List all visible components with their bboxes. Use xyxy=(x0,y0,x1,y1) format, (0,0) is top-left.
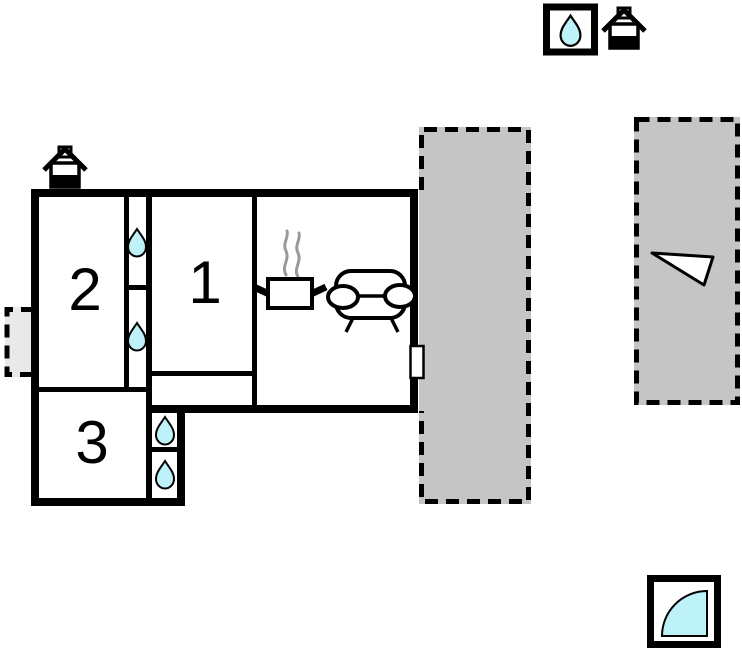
wall-room1-left xyxy=(146,197,152,506)
floorplan-canvas: 1 2 3 xyxy=(0,0,742,652)
house-icon xyxy=(603,8,645,48)
sofa-armrest-left xyxy=(328,286,358,308)
door-swing-legend xyxy=(651,579,718,645)
wall-left xyxy=(31,189,39,506)
wall-room3-column-divider xyxy=(152,447,185,452)
bathroom-legend xyxy=(547,7,595,52)
room-1-label: 1 xyxy=(188,249,221,316)
room-2-label: 2 xyxy=(68,256,101,323)
wall-top xyxy=(31,189,418,197)
wall-room2-column-divider xyxy=(124,285,152,290)
terrace-1-fill xyxy=(419,127,531,504)
building: 1 2 3 xyxy=(31,189,424,506)
wall-room2-column-left xyxy=(124,197,129,388)
terrace-2 xyxy=(634,117,740,405)
house-icon xyxy=(44,147,86,187)
wall-room2-room3-divider xyxy=(31,387,152,392)
room-3-label: 3 xyxy=(75,409,108,476)
annex-outline xyxy=(5,307,34,377)
floorplan: 1 2 3 xyxy=(0,0,742,652)
entrance-door-icon xyxy=(411,346,424,378)
wall-hall-top xyxy=(146,371,252,376)
wall-bottom-ext xyxy=(31,498,185,506)
pot-body xyxy=(268,279,312,308)
sofa-armrest-right xyxy=(385,285,415,307)
wall-bottom-main xyxy=(146,405,418,413)
wall-ext-right xyxy=(177,405,185,506)
terrace-1 xyxy=(419,127,531,504)
wall-room1-right xyxy=(252,197,257,405)
